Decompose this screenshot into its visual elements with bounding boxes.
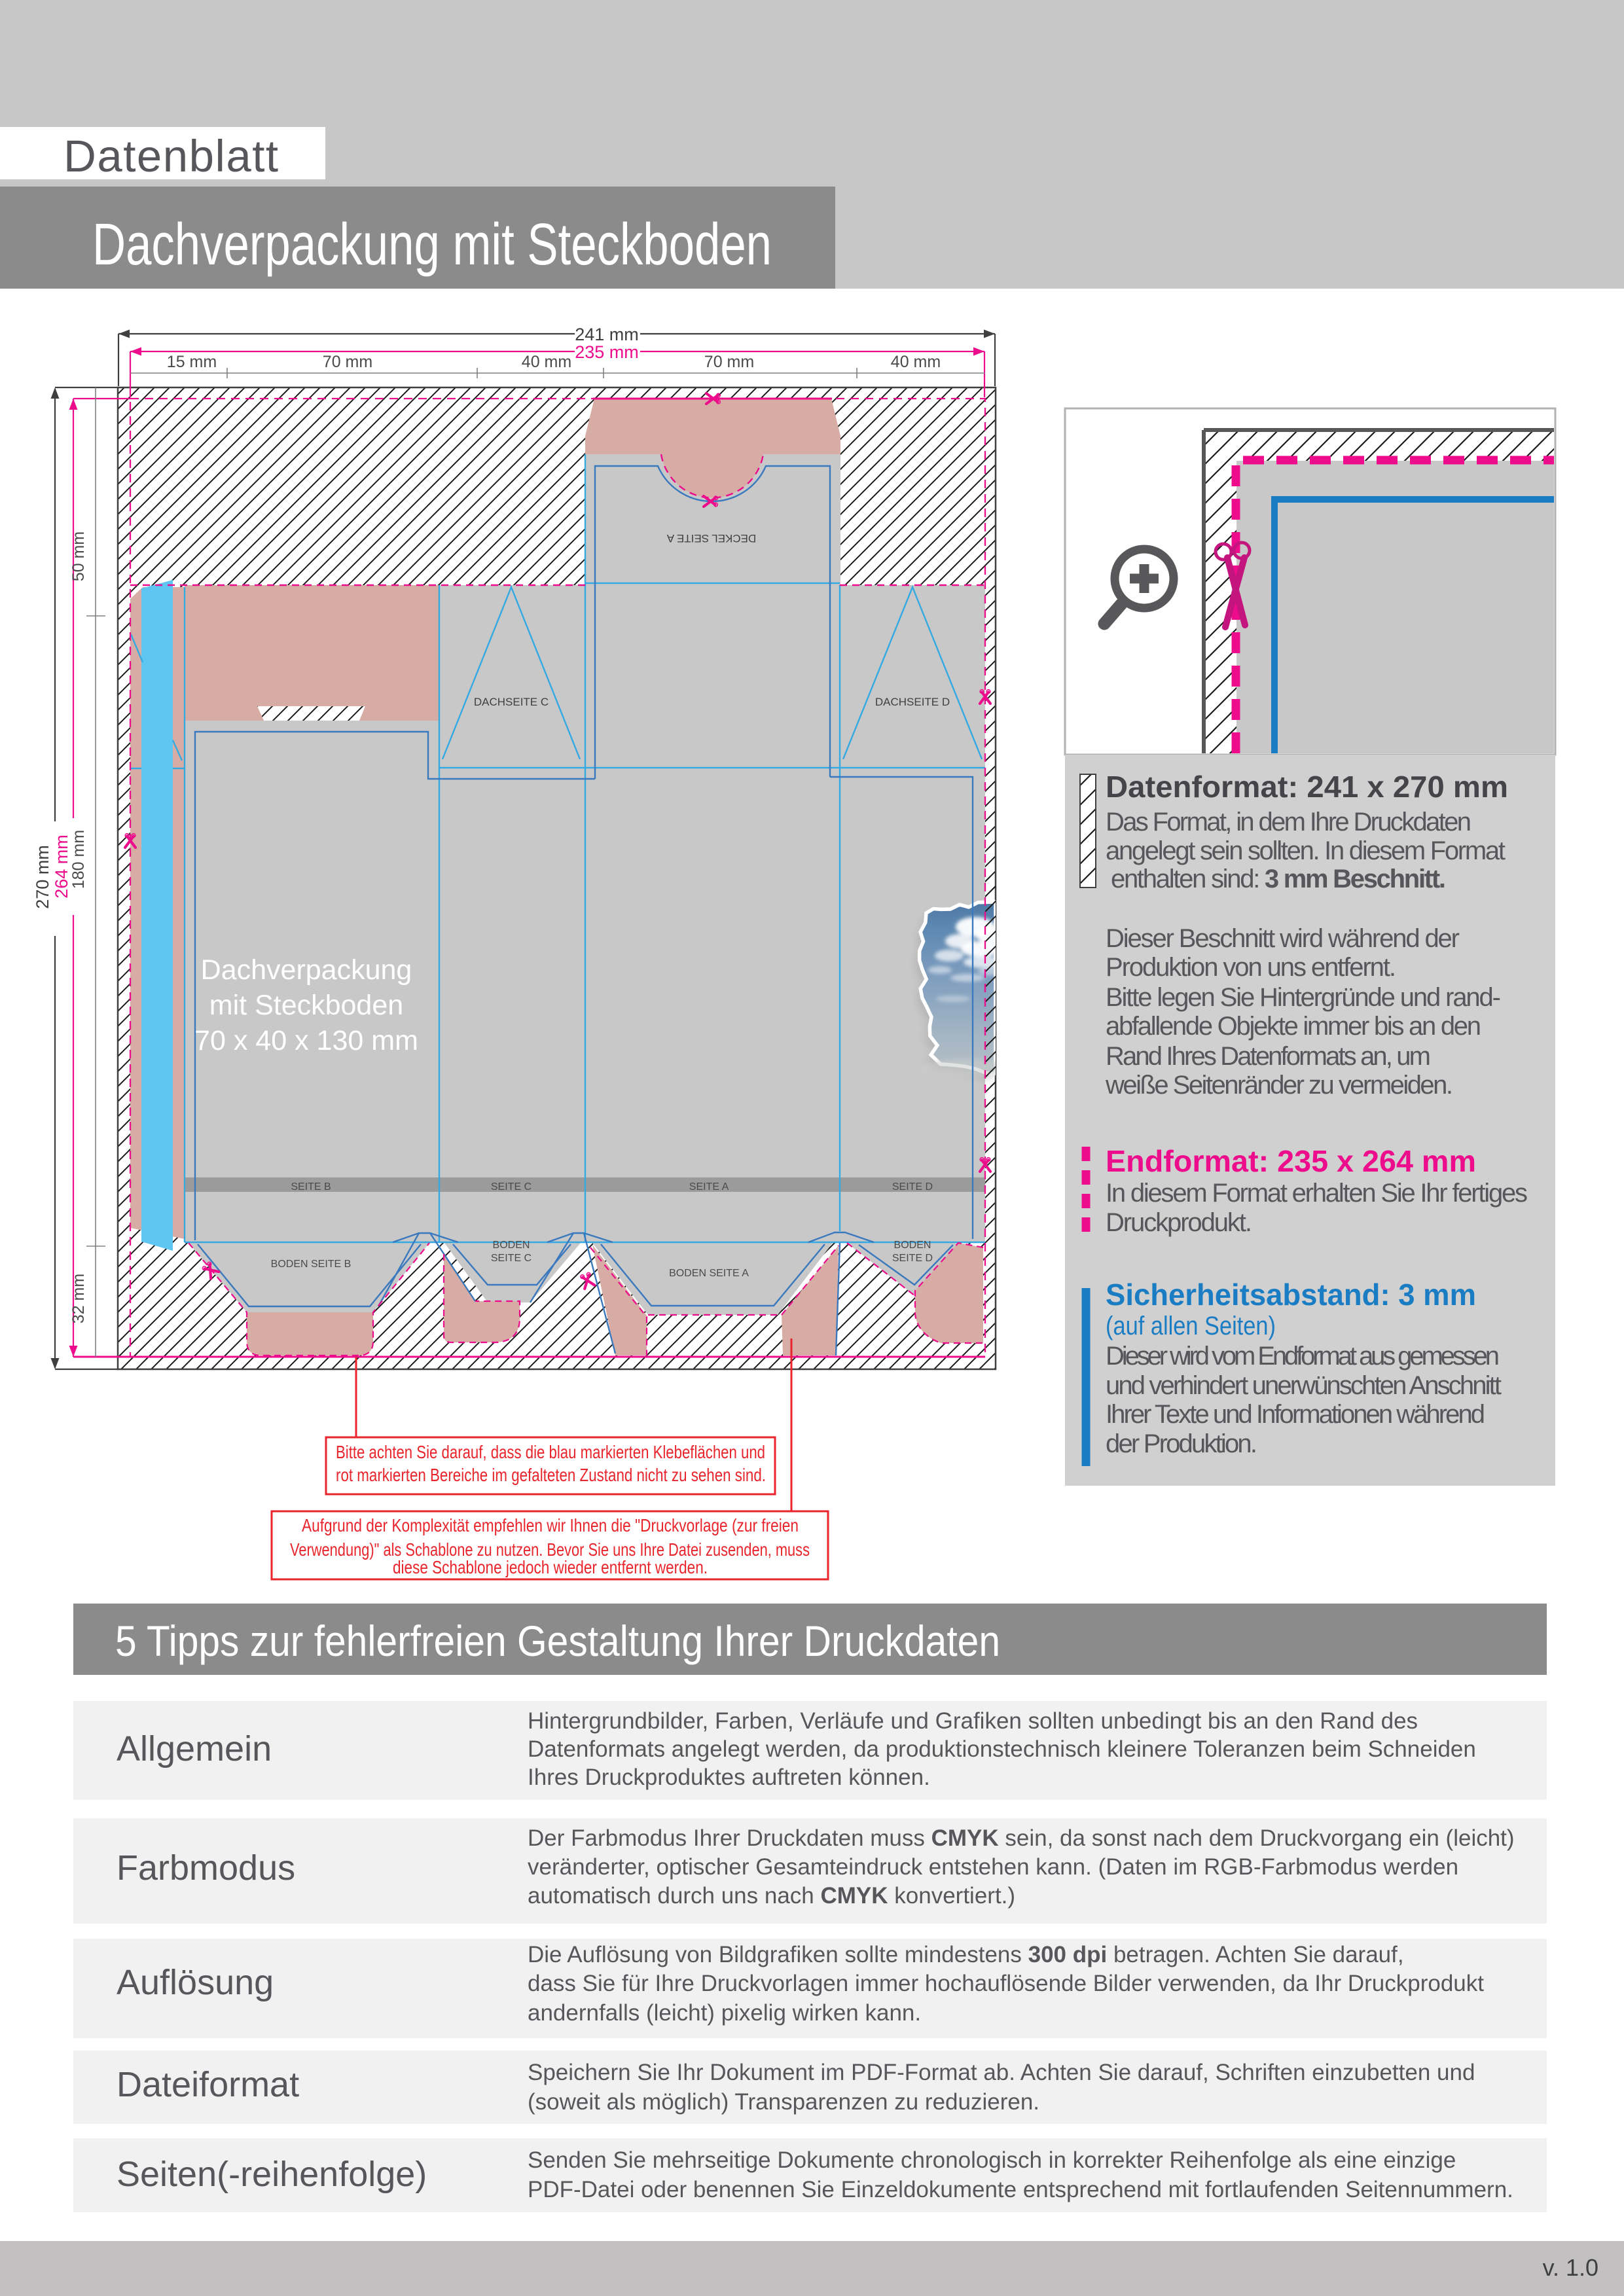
svg-text:angelegt sein sollten. In dies: angelegt sein sollten. In diesem Format [1106,836,1506,865]
svg-text:SEITE C: SEITE C [491,1253,532,1264]
svg-text:50 mm: 50 mm [69,531,88,581]
svg-text:Bitte legen Sie Hintergründe u: Bitte legen Sie Hintergründe und rand- [1106,983,1501,1012]
svg-text:BODEN: BODEN [894,1240,931,1251]
svg-text:Speichern Sie Ihr Dokument im: Speichern Sie Ihr Dokument im PDF-Format… [528,2060,1475,2085]
svg-text:40 mm: 40 mm [891,353,941,371]
svg-text:der Produktion.: der Produktion. [1106,1429,1257,1458]
svg-text:automatisch durch uns nach CMY: automatisch durch uns nach CMYK konverti… [528,1883,1015,1909]
svg-text:DACHSEITE C: DACHSEITE C [474,696,549,708]
svg-text:Rand Ihres Datenformats an, um: Rand Ihres Datenformats an, um [1106,1042,1431,1071]
svg-text:Dachverpackung: Dachverpackung [201,954,412,986]
svg-text:Ihrer Texte und Informationen: Ihrer Texte und Informationen während [1106,1400,1485,1429]
svg-text:Der Farbmodus Ihrer Druckdaten: Der Farbmodus Ihrer Druckdaten muss CMYK… [528,1825,1515,1851]
svg-text:Dateiformat: Dateiformat [117,2065,299,2104]
svg-text:70 mm: 70 mm [704,353,754,371]
svg-text:SEITE A: SEITE A [689,1181,729,1193]
svg-text:32 mm: 32 mm [69,1274,88,1323]
svg-text:DACHSEITE D: DACHSEITE D [875,696,950,708]
svg-text:Farbmodus: Farbmodus [117,1848,295,1888]
svg-text:70 mm: 70 mm [323,353,372,371]
svg-text:Dieser wird vom Endformat aus: Dieser wird vom Endformat aus gemessen [1106,1342,1500,1371]
svg-text:diese Schablone jedoch wieder: diese Schablone jedoch wieder entfernt w… [393,1557,708,1577]
svg-text:(soweit als möglich) Transpare: (soweit als möglich) Transparenzen zu re… [528,2089,1039,2115]
svg-text:70 x 40 x 130 mm: 70 x 40 x 130 mm [194,1025,418,1056]
svg-text:Allgemein: Allgemein [117,1729,272,1768]
svg-text:Datenformats angelegt werden,: Datenformats angelegt werden, da produkt… [528,1736,1476,1762]
svg-text:241 mm: 241 mm [575,325,639,344]
svg-text:DECKEL SEITE A: DECKEL SEITE A [666,532,756,545]
svg-text:mit Steckboden: mit Steckboden [209,990,403,1021]
svg-text:PDF-Datei oder benennen Sie Ei: PDF-Datei oder benennen Sie Einzeldokume… [528,2177,1513,2202]
svg-text:weiße Seitenränder zu vermeide: weiße Seitenränder zu vermeiden. [1105,1071,1453,1100]
svg-text:Dieser Beschnitt wird während: Dieser Beschnitt wird während der [1106,924,1460,953]
svg-text:264 mm: 264 mm [52,834,71,899]
svg-text:dass Sie für Ihre Druckvorlage: dass Sie für Ihre Druckvorlagen immer ho… [528,1971,1484,1996]
svg-text:5 Tipps zur fehlerfreien Gesta: 5 Tipps zur fehlerfreien Gestaltung Ihre… [115,1617,1000,1665]
svg-text:Bitte achten Sie darauf, dass: Bitte achten Sie darauf, dass die blau m… [336,1442,765,1462]
svg-text:Datenblatt: Datenblatt [63,131,280,181]
svg-text:BODEN SEITE B: BODEN SEITE B [271,1259,352,1270]
svg-text:andernfalls (leicht) pixelig w: andernfalls (leicht) pixelig wirken kann… [528,2000,921,2026]
svg-text:BODEN: BODEN [493,1240,530,1251]
svg-text:Dachverpackung mit Steckboden: Dachverpackung mit Steckboden [92,212,772,278]
svg-text:rot markierten Bereiche im gef: rot markierten Bereiche im gefalteten Zu… [336,1465,766,1485]
svg-text:Hintergrundbilder, Farben, Ver: Hintergrundbilder, Farben, Verläufe und … [528,1708,1418,1734]
svg-text:15 mm: 15 mm [167,353,217,371]
svg-text:In diesem Format erhalten Sie: In diesem Format erhalten Sie Ihr fertig… [1106,1179,1528,1208]
svg-text:235 mm: 235 mm [575,342,639,362]
svg-text:enthalten sind: 3 mm Beschnitt: enthalten sind: 3 mm Beschnitt. [1111,865,1446,893]
svg-text:SEITE B: SEITE B [291,1181,331,1193]
svg-text:270 mm: 270 mm [33,845,52,909]
svg-text:(auf allen Seiten): (auf allen Seiten) [1106,1312,1276,1340]
svg-text:180 mm: 180 mm [69,830,88,889]
svg-text:Endformat: 235 x 264 mm: Endformat: 235 x 264 mm [1106,1144,1476,1178]
svg-text:Auflösung: Auflösung [117,1963,274,2002]
svg-text:40 mm: 40 mm [522,353,571,371]
svg-text:Datenformat: 241 x 270 mm: Datenformat: 241 x 270 mm [1106,770,1508,804]
svg-text:Druckprodukt.: Druckprodukt. [1106,1208,1252,1237]
svg-text:SEITE D: SEITE D [892,1181,933,1193]
svg-text:Produktion von uns entfernt.: Produktion von uns entfernt. [1106,953,1396,982]
svg-text:Die Auflösung von Bildgrafiken: Die Auflösung von Bildgrafiken sollte mi… [528,1942,1404,1967]
svg-text:Ihres Druckproduktes auftreten: Ihres Druckproduktes auftreten können. [528,1765,930,1790]
svg-text:Seiten(-reihenfolge): Seiten(-reihenfolge) [117,2155,427,2194]
svg-text:veränderter, optischer Gesamte: veränderter, optischer Gesamteindruck en… [528,1854,1458,1880]
svg-text:BODEN SEITE A: BODEN SEITE A [669,1268,749,1279]
svg-text:Aufgrund der Komplexität empfe: Aufgrund der Komplexität empfehlen wir I… [302,1515,799,1535]
svg-text:SEITE C: SEITE C [491,1181,532,1193]
svg-text:Sicherheitsabstand: 3 mm: Sicherheitsabstand: 3 mm [1106,1278,1476,1312]
svg-text:abfallende Objekte immer bis a: abfallende Objekte immer bis an den [1106,1012,1481,1041]
svg-text:Senden Sie mehrseitige Dokumen: Senden Sie mehrseitige Dokumente chronol… [528,2147,1456,2173]
svg-text:SEITE D: SEITE D [892,1253,933,1264]
svg-text:Das Format, in dem Ihre Druckd: Das Format, in dem Ihre Druckdaten [1106,808,1471,836]
svg-text:v. 1.0: v. 1.0 [1543,2254,1598,2281]
svg-text:und verhindert unerwünschten A: und verhindert unerwünschten Anschnitt [1106,1371,1502,1400]
